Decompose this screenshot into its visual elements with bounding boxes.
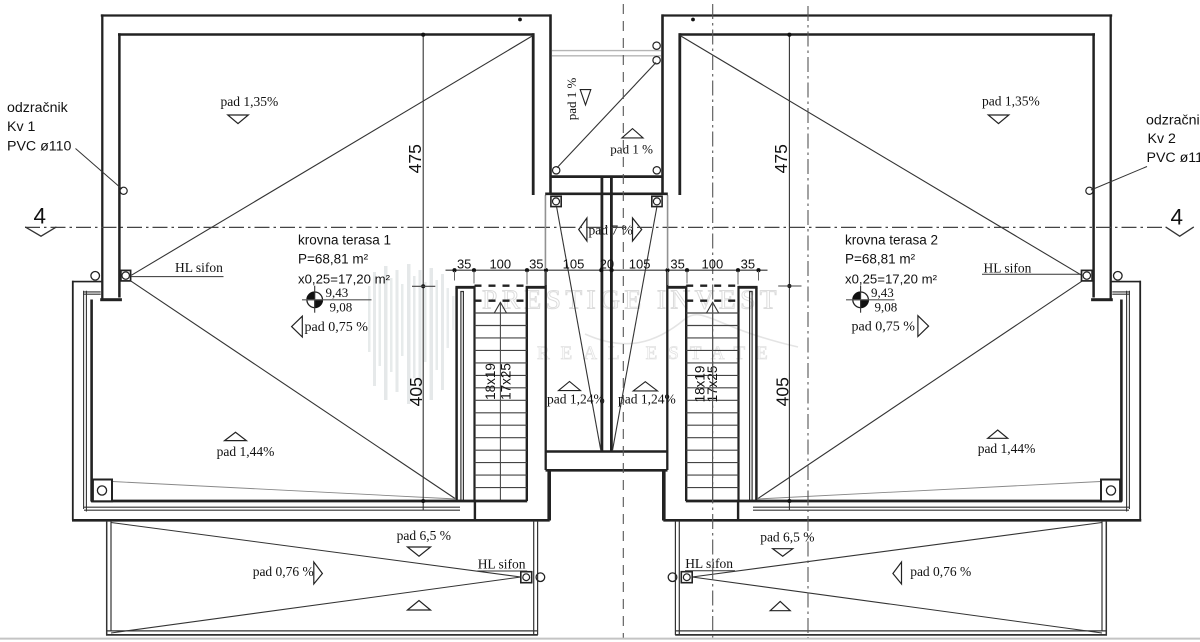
svg-text:4: 4 <box>1171 205 1184 230</box>
svg-text:105: 105 <box>629 256 651 271</box>
svg-text:pad 1,35%: pad 1,35% <box>982 94 1040 109</box>
svg-text:HL sifon: HL sifon <box>478 557 526 572</box>
svg-text:9,43: 9,43 <box>871 285 894 300</box>
svg-text:pad 1 %: pad 1 % <box>564 78 579 121</box>
svg-text:pad 0,76 %: pad 0,76 % <box>253 564 314 579</box>
svg-text:4: 4 <box>34 204 47 229</box>
svg-text:18x19: 18x19 <box>483 363 498 400</box>
svg-text:35: 35 <box>670 256 684 271</box>
svg-text:pad 1,44%: pad 1,44% <box>978 441 1036 456</box>
svg-text:PVC ø110: PVC ø110 <box>7 139 72 155</box>
svg-text:HL sifon: HL sifon <box>984 260 1032 275</box>
svg-text:pad 1 %: pad 1 % <box>610 142 653 157</box>
svg-text:475: 475 <box>405 144 425 173</box>
svg-text:pad 0,76 %: pad 0,76 % <box>910 564 971 579</box>
svg-text:35: 35 <box>457 256 471 271</box>
svg-text:100: 100 <box>702 256 724 271</box>
svg-text:pad 1,24%: pad 1,24% <box>547 392 605 407</box>
svg-text:35: 35 <box>741 256 755 271</box>
svg-text:pad 1,35%: pad 1,35% <box>221 94 279 109</box>
svg-text:pad 7 %: pad 7 % <box>589 223 633 238</box>
svg-text:pad 6,5 %: pad 6,5 % <box>397 528 451 543</box>
svg-text:HL sifon: HL sifon <box>175 260 223 275</box>
svg-text:9,08: 9,08 <box>330 299 353 314</box>
svg-text:9,43: 9,43 <box>326 285 349 300</box>
svg-text:odzračnik: odzračnik <box>1146 113 1200 129</box>
svg-text:pad 6,5 %: pad 6,5 % <box>760 530 814 545</box>
svg-text:405: 405 <box>406 377 426 406</box>
svg-text:PVC ø110: PVC ø110 <box>1147 150 1200 166</box>
svg-text:17x25: 17x25 <box>498 363 513 400</box>
svg-text:100: 100 <box>489 256 511 271</box>
svg-text:P=68,81 m²: P=68,81 m² <box>845 251 916 266</box>
svg-text:Kv 2: Kv 2 <box>1148 131 1176 147</box>
svg-text:9,08: 9,08 <box>875 299 898 314</box>
svg-text:405: 405 <box>772 377 792 406</box>
svg-text:475: 475 <box>771 144 791 173</box>
svg-text:REAL ESTATE: REAL ESTATE <box>537 343 779 364</box>
svg-text:krovna terasa 1: krovna terasa 1 <box>298 233 391 248</box>
svg-text:Kv 1: Kv 1 <box>7 119 35 135</box>
svg-text:20: 20 <box>600 256 614 271</box>
svg-text:35: 35 <box>529 256 543 271</box>
svg-text:krovna terasa 2: krovna terasa 2 <box>845 233 938 248</box>
svg-text:pad 1,44%: pad 1,44% <box>217 444 275 459</box>
svg-text:pad 0,75 %: pad 0,75 % <box>305 320 369 335</box>
svg-text:pad 0,75 %: pad 0,75 % <box>852 320 916 335</box>
svg-text:P=68,81 m²: P=68,81 m² <box>298 251 369 266</box>
svg-text:HL sifon: HL sifon <box>685 556 733 571</box>
svg-text:odzračnik: odzračnik <box>7 100 69 116</box>
svg-text:105: 105 <box>563 256 585 271</box>
svg-text:pad 1,24%: pad 1,24% <box>618 392 676 407</box>
